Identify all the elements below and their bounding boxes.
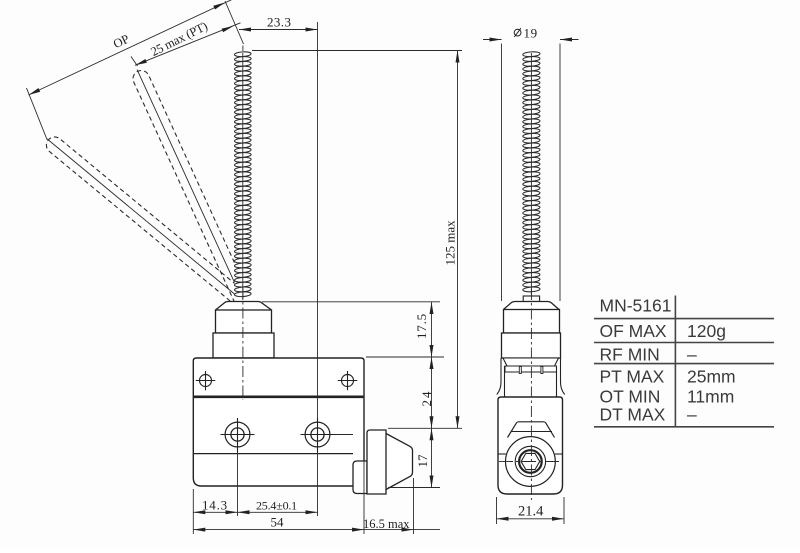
svg-text:DT MAX: DT MAX xyxy=(600,405,666,425)
svg-text:14.3: 14.3 xyxy=(202,498,228,513)
svg-text:21.4: 21.4 xyxy=(518,504,544,520)
svg-text:11mm: 11mm xyxy=(687,387,734,407)
svg-text:OF MAX: OF MAX xyxy=(600,321,667,341)
svg-text:MN-5161: MN-5161 xyxy=(600,296,672,316)
svg-text:17.5: 17.5 xyxy=(414,313,429,339)
svg-text:23.3: 23.3 xyxy=(267,15,291,30)
svg-text:54: 54 xyxy=(271,515,285,530)
svg-text:16.5 max: 16.5 max xyxy=(363,517,410,531)
svg-text:24: 24 xyxy=(419,390,434,407)
svg-text:17: 17 xyxy=(415,454,430,468)
svg-text:25.4±0.1: 25.4±0.1 xyxy=(256,499,297,513)
svg-text:RF MIN: RF MIN xyxy=(600,344,660,364)
svg-text:PT MAX: PT MAX xyxy=(600,367,665,387)
svg-text:120g: 120g xyxy=(687,321,726,341)
svg-text:19: 19 xyxy=(524,26,538,41)
svg-text:–: – xyxy=(687,405,697,425)
svg-text:OT MIN: OT MIN xyxy=(600,387,661,407)
svg-text:–: – xyxy=(687,344,697,364)
svg-text:25mm: 25mm xyxy=(687,367,736,387)
svg-text:125 max: 125 max xyxy=(443,220,458,266)
